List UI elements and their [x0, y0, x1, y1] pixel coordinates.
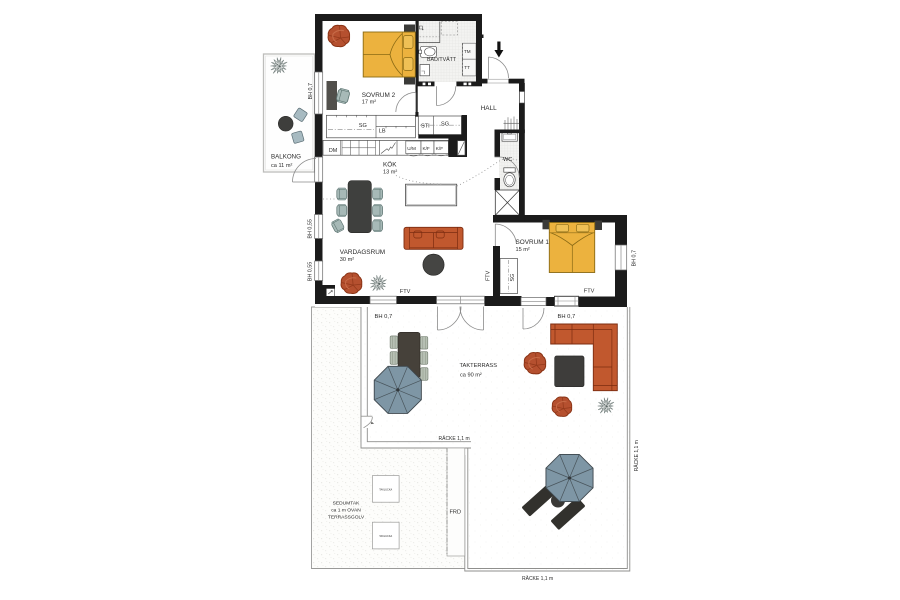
svg-text:K/F: K/F	[436, 146, 443, 151]
svg-text:U/M: U/M	[407, 146, 416, 151]
svg-text:TAKLUCKA: TAKLUCKA	[379, 488, 392, 491]
svg-text:RÄCKE 1,1 m: RÄCKE 1,1 m	[439, 435, 470, 442]
svg-text:SG: SG	[510, 274, 516, 282]
svg-text:KÖK: KÖK	[383, 160, 397, 168]
svg-text:ca 1 m OVAN: ca 1 m OVAN	[331, 508, 361, 514]
svg-text:SG: SG	[359, 123, 367, 129]
svg-text:SOVRUM 1: SOVRUM 1	[516, 239, 550, 246]
svg-text:15 m²: 15 m²	[516, 247, 530, 253]
svg-text:ca 11 m²: ca 11 m²	[271, 163, 292, 169]
svg-text:WC: WC	[503, 157, 512, 163]
svg-text:SEDUMTAK: SEDUMTAK	[333, 501, 361, 507]
svg-text:SG: SG	[441, 121, 449, 127]
svg-text:RÄCKE 1,1 m: RÄCKE 1,1 m	[522, 575, 553, 582]
svg-text:13 m²: 13 m²	[383, 169, 397, 175]
svg-text:TT: TT	[464, 65, 470, 70]
svg-text:K/F: K/F	[423, 146, 430, 151]
svg-text:TM: TM	[464, 49, 471, 54]
svg-text:ca 90 m²: ca 90 m²	[460, 372, 482, 378]
svg-text:BH 0,7: BH 0,7	[375, 314, 393, 320]
svg-text:FTV: FTV	[584, 289, 595, 295]
svg-text:TAKLUCKA: TAKLUCKA	[379, 535, 392, 538]
svg-text:VARDAGSRUM: VARDAGSRUM	[340, 249, 385, 256]
svg-text:RÄCKE 1,1 m: RÄCKE 1,1 m	[633, 440, 640, 471]
svg-text:DM: DM	[329, 148, 338, 154]
svg-text:BH 0,7: BH 0,7	[631, 250, 637, 266]
svg-text:TERRASSGOLV: TERRASSGOLV	[328, 515, 365, 521]
svg-text:17 m²: 17 m²	[362, 100, 376, 106]
svg-text:LB: LB	[379, 128, 386, 134]
svg-text:FTV: FTV	[485, 270, 491, 281]
svg-text:BH 0,7: BH 0,7	[308, 83, 314, 99]
svg-text:SOVRUM 2: SOVRUM 2	[362, 92, 396, 99]
svg-text:BH 0,7: BH 0,7	[558, 314, 576, 320]
svg-text:FTV: FTV	[400, 289, 411, 295]
svg-text:BAD/TVÄTT: BAD/TVÄTT	[427, 56, 457, 63]
svg-text:TAKTERRASS: TAKTERRASS	[460, 363, 498, 369]
svg-text:BH 0,55: BH 0,55	[308, 262, 314, 281]
svg-text:HALL: HALL	[481, 105, 497, 112]
svg-text:FRD: FRD	[450, 509, 462, 515]
svg-text:30 m²: 30 m²	[340, 257, 354, 263]
svg-text:BALKONG: BALKONG	[271, 153, 301, 160]
svg-text:BH 0,55: BH 0,55	[308, 219, 314, 238]
svg-text:STI: STI	[421, 124, 430, 130]
